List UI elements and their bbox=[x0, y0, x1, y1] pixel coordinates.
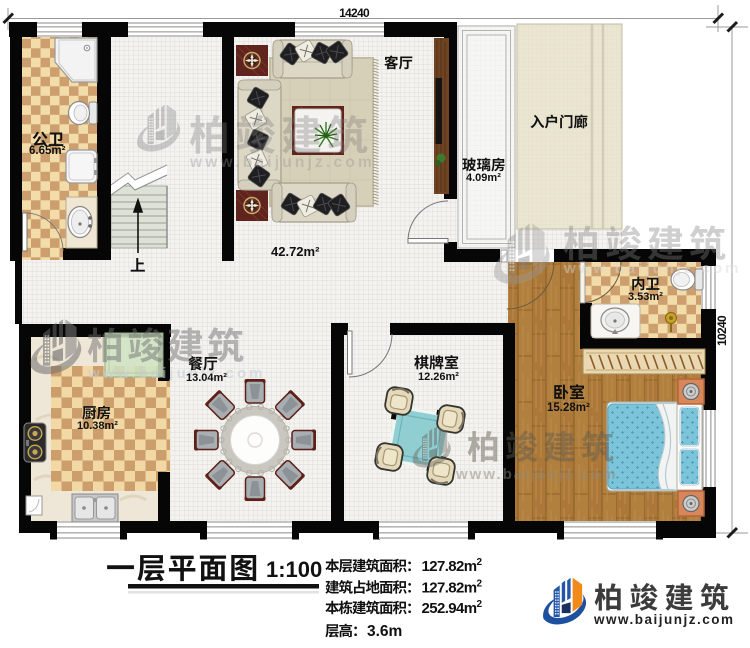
svg-text:252.94m2: 252.94m2 bbox=[422, 599, 483, 617]
svg-text:10240: 10240 bbox=[715, 315, 729, 346]
svg-text:42.72m²: 42.72m² bbox=[271, 244, 320, 259]
svg-text:127.82m2: 127.82m2 bbox=[422, 579, 483, 597]
svg-text:www.baijunjz.com: www.baijunjz.com bbox=[563, 260, 741, 277]
svg-text:www.baijunjz.com: www.baijunjz.com bbox=[189, 154, 375, 171]
svg-text:www.baijunjz.com: www.baijunjz.com bbox=[455, 466, 617, 483]
svg-text:14240: 14240 bbox=[339, 6, 370, 20]
svg-text:15.28m²: 15.28m² bbox=[547, 402, 590, 414]
svg-text:4.09m²: 4.09m² bbox=[466, 172, 501, 184]
svg-text:www.baijunjz.com: www.baijunjz.com bbox=[87, 365, 265, 382]
svg-text:www.baijunjz.com: www.baijunjz.com bbox=[593, 612, 735, 627]
svg-text:3.6m: 3.6m bbox=[367, 623, 402, 640]
svg-text:127.82m2: 127.82m2 bbox=[422, 557, 483, 575]
svg-text:3.53m²: 3.53m² bbox=[628, 291, 663, 303]
svg-text:13.04m²: 13.04m² bbox=[186, 372, 227, 384]
svg-text:10.38m²: 10.38m² bbox=[77, 420, 118, 432]
svg-text:1:100: 1:100 bbox=[266, 557, 322, 582]
svg-text:6.65m²: 6.65m² bbox=[29, 145, 66, 157]
svg-text:12.26m²: 12.26m² bbox=[418, 371, 459, 383]
